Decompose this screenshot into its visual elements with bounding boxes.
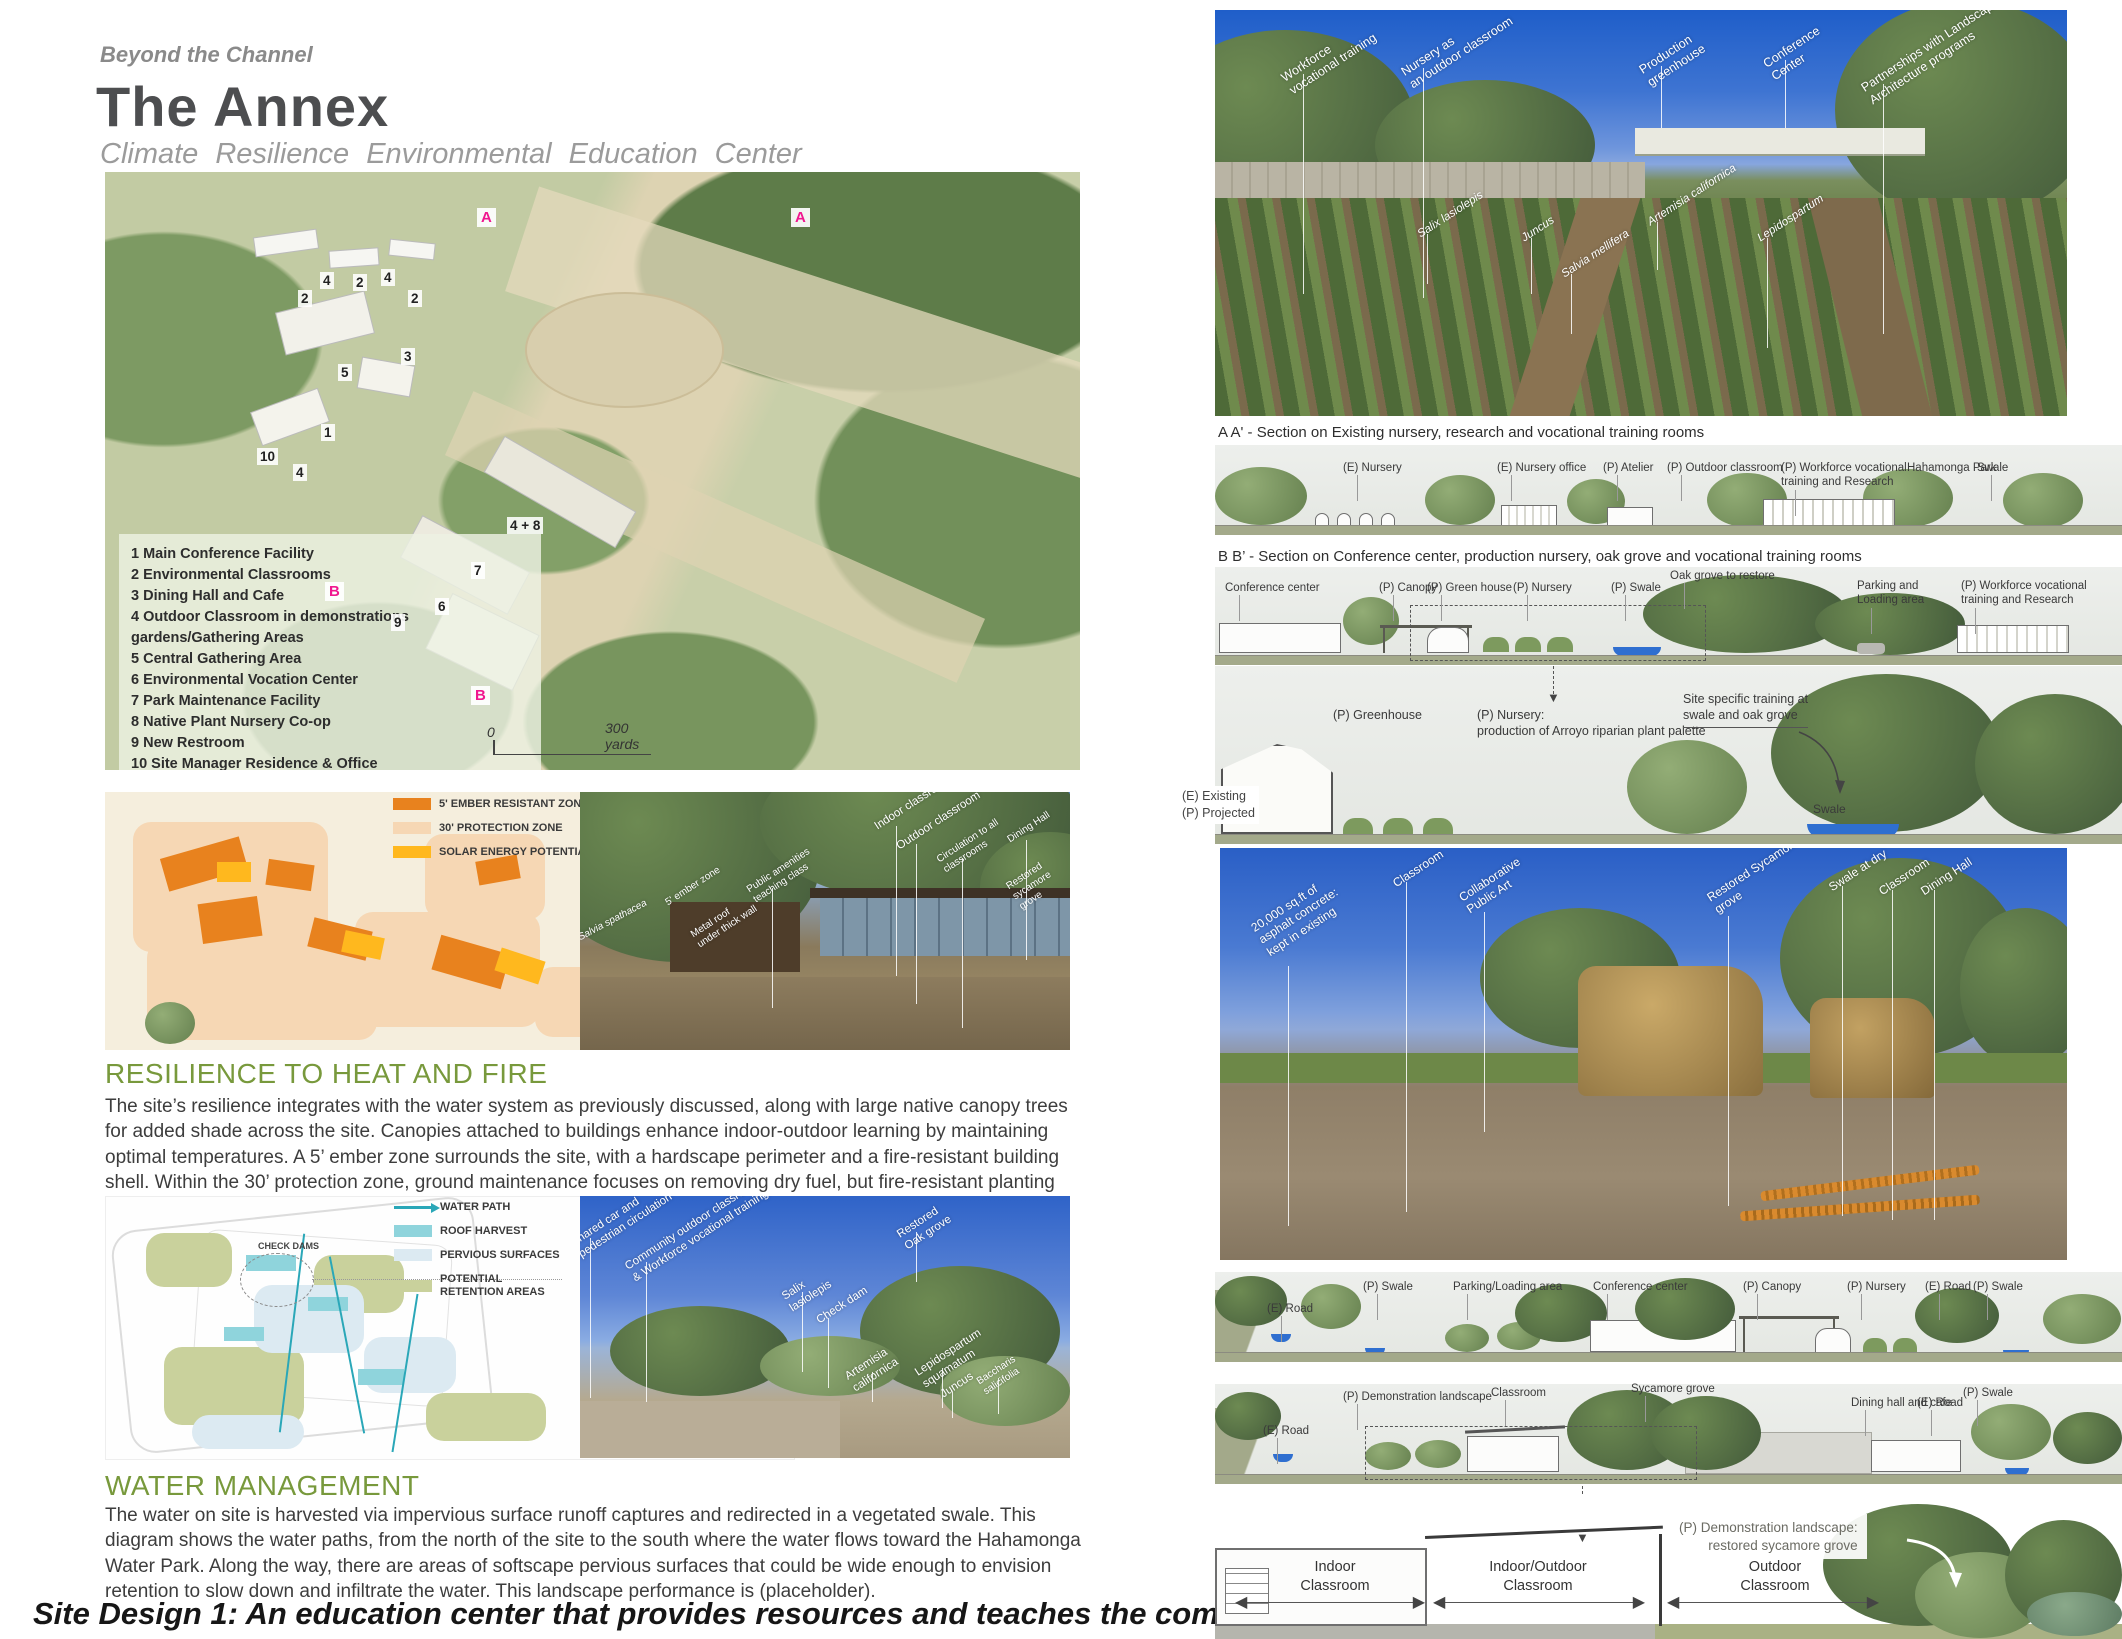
atelier-building [1607,507,1653,526]
leader-line [942,1368,943,1408]
curved-arrow-icon [1795,728,1855,798]
parked-car [1857,643,1885,654]
arrow-right-icon: ▶ [1633,1592,1645,1612]
section-b-caption: B B’ - Section on Conference center, pro… [1218,548,1862,565]
plan-marker: 2 [408,290,422,307]
water-legend-label: ROOF HARVEST [440,1225,527,1238]
photo-annotation: Collaborative Public Art [1456,854,1530,916]
section-label: (E) Road [1925,1280,1971,1294]
down-arrow-icon: ▼ [1547,690,1560,705]
plan-marker: 4 [381,269,395,286]
tree-blob [1425,475,1495,525]
leader-line [1571,274,1572,334]
fire-legend-row: 30' PROTECTION ZONE [393,822,563,835]
section-label: Conference center [1593,1280,1688,1294]
leader-line [590,1238,591,1398]
section-label: Swale [1977,461,2008,475]
section-label: (E) Road [1263,1424,1309,1438]
leader-line [1892,890,1893,1220]
plan-marker: 2 [353,274,367,291]
scale-tick [493,740,495,755]
photo-annotation: Restored Oak grove [895,1202,955,1254]
photo-annotation: 20,000 sq.ft of asphalt concrete: kept i… [1248,873,1348,959]
leader-line [1484,912,1485,1132]
leader-line [1303,74,1304,294]
water-legend-label: POTENTIAL RETENTION AREAS [440,1273,545,1298]
leader-line [802,1292,803,1372]
solar-swatch-icon [393,846,431,858]
nursery-photo: Workforce vocational training Nursery as… [1215,10,2067,416]
leader-line [1427,234,1428,284]
detail-label-swale: Swale [1813,802,1846,817]
arrow-right-icon: ▶ [1413,1592,1425,1612]
leader-line [828,1318,829,1388]
detail-section-drawing: ▼ (P) Greenhouse (P) Nursery: production… [1215,666,2122,844]
plan-marker: 4 + 8 [507,517,543,534]
leader-line [1657,222,1658,270]
curved-arrow-icon [1903,1536,1967,1592]
tree-blob [2043,1294,2121,1344]
art-grove-photo: 20,000 sq.ft of asphalt concrete: kept i… [1220,848,2067,1260]
section-a-drawing: (E) Nursery (E) Nursery office (P) Ateli… [1215,445,2122,535]
photo-annotation: Conference Center [1761,24,1832,84]
stone-wall [1215,162,1645,198]
leader-line [872,1372,873,1402]
solar-roof [217,862,251,882]
section-b-drawing: Conference center (P) Canopy (P) Green h… [1215,567,2122,665]
bike-path-marker: A [791,208,810,227]
leader-line [646,1262,647,1402]
nursery-bed [1423,818,1453,834]
gravel-path [580,1401,840,1458]
workforce-building [1957,625,2069,653]
leader-line [1883,84,1884,334]
nursery-bed [1383,818,1413,834]
protection-zone-swatch-icon [393,822,431,834]
section-label: Oak grove to restore [1670,569,1775,583]
ground [1215,1352,2122,1362]
section-label: (P) Green house [1427,581,1512,595]
scale-distance: 300 yards [605,720,639,752]
ember-zone-building [198,896,263,944]
stick-structure [1578,966,1763,1096]
leader-line [772,888,773,1008]
ground [1215,834,2122,844]
legend-item: 7 Park Maintenance Facility [131,691,529,712]
workforce-building [1763,499,1895,526]
fire-render-photo: Indoor classroom Outdoor classroom Circu… [580,792,1070,1050]
tree-blob [610,1306,790,1396]
water-render-photo: Shared car and pedestrian circulation Co… [580,1196,1070,1458]
leader-line [998,1378,999,1414]
conference-building [1635,128,1925,154]
fire-legend-row: SOLAR ENERGY POTENTIAL [393,846,592,859]
arrow-left-icon: ◀ [1235,1592,1247,1612]
plan-marker: 4 [320,272,334,289]
water-path-arrow-icon [394,1206,432,1209]
section-label: (P) Swale [1973,1280,2023,1294]
arrow-left-icon: ◀ [1667,1592,1679,1612]
water-legend-row: PERVIOUS SURFACES [394,1249,560,1262]
section-label: Parking/Loading area [1453,1280,1562,1294]
plan-marker: 9 [391,614,405,631]
photo-annotation: Restored Sycamore grove [1704,848,1809,917]
scale-zero: 0 [487,724,495,740]
plan-marker: 2 [298,290,312,307]
ember-zone-swatch-icon [393,798,431,810]
roof-harvest-shape [308,1297,348,1311]
water-body: The water on site is harvested via imper… [105,1503,1083,1604]
section-label: Conference center [1225,581,1320,595]
plan-marker: 5 [338,364,352,381]
building-footprint [330,248,379,267]
check-dams-circle [240,1253,314,1307]
detail-label-nursery: (P) Nursery: production of Arroyo ripari… [1477,708,1706,739]
fire-legend-row: 5' EMBER RESISTANT ZONE [393,798,589,811]
leader-line [1661,66,1662,128]
canopy-post [1383,625,1385,653]
tree-blob [145,1002,195,1044]
section-label: Parking and Loading area [1857,579,1924,608]
leader-line [1288,966,1289,1226]
page-title: The Annex [96,74,389,139]
nursery-bed [1343,818,1373,834]
zone-dimension: ◀▶ [1433,1592,1645,1612]
ground [580,977,1070,1050]
retention-area [426,1393,546,1441]
trail-marker: B [471,686,490,705]
leader-line [962,858,963,1028]
presentation-board: Beyond the Channel The Annex Climate Res… [0,0,2122,1639]
plan-marker: 7 [471,562,485,579]
water-legend-row: WATER PATH [394,1201,510,1214]
nursery-bed [1893,1338,1917,1352]
water-legend-row: ROOF HARVEST [394,1225,527,1238]
section-label: (E) Nursery office [1497,461,1586,475]
fire-legend-label: 5' EMBER RESISTANT ZONE [439,798,589,811]
page-subtitle: Climate Resilience Environmental Educati… [100,138,802,171]
building-footprint [389,240,434,260]
fire-legend-label: SOLAR ENERGY POTENTIAL [439,846,592,859]
roof-harvest-shape [358,1369,404,1385]
section-label: (P) Demonstration landscape [1343,1390,1492,1404]
section-label: (P) Nursery [1847,1280,1906,1294]
water-legend-label: PERVIOUS SURFACES [440,1249,560,1262]
section-label: (E) Road [1917,1396,1963,1410]
tree-blob [1627,740,1747,834]
section-c-drawing: (E) Road (P) Swale Parking/Loading area … [1215,1272,2122,1362]
pervious-surface [192,1415,304,1449]
riding-ring [525,292,724,408]
bike-path-marker: A [477,208,496,227]
fire-legend-label: 30' PROTECTION ZONE [439,822,563,835]
tree-blob [2053,1412,2122,1464]
retention-area [146,1233,232,1287]
building-footprint [251,389,328,445]
leader-line [952,1392,953,1418]
zone-dimension: ◀▶ [1667,1592,1879,1612]
site-plan-map: 1 Main Conference Facility 2 Environment… [105,172,1080,770]
legend-item: 9 New Restroom [131,733,529,754]
project-eyebrow: Beyond the Channel [100,42,313,68]
canopy-post [1743,1316,1745,1352]
section-label: (P) Nursery [1513,581,1572,595]
existing-projected-key: (E) Existing (P) Projected [1178,786,1259,824]
roof-harvest-swatch-icon [394,1225,432,1237]
section-label: (P) Workforce vocational training and Re… [1961,579,2087,608]
leader-line [1842,886,1843,1216]
leader-line [1026,840,1027,960]
tree-blob [1215,1276,1287,1326]
building-footprint [254,230,318,256]
plan-marker: 1 [321,424,335,441]
legend-item: 8 Native Plant Nursery Co-op [131,712,529,733]
zone-label: Indoor Classroom [1255,1558,1415,1596]
pervious-swatch-icon [394,1249,432,1261]
zone-dimension: ◀▶ [1235,1592,1425,1612]
nursery-office-building [1501,505,1557,526]
stick-structure [1388,1018,1473,1098]
demonstration-callout: (P) Demonstration landscape: restored sy… [1670,1514,1867,1559]
leader-line [916,1232,917,1282]
leader-line [1406,882,1407,1212]
leader-line [1728,916,1729,1206]
section-label: Sycamore grove [1631,1382,1715,1396]
water-legend-label: WATER PATH [440,1201,510,1214]
plan-marker: 3 [401,348,415,365]
canopy-roof [1739,1316,1839,1319]
leader-line [896,826,897,976]
section-label: (P) Atelier [1603,461,1654,475]
detail-label-greenhouse: (P) Greenhouse [1333,708,1422,724]
dining-building [1871,1440,1961,1472]
stick-structure [1810,998,1935,1098]
stick-bundle [1760,1165,1980,1202]
leader-line [1934,890,1935,1220]
legend-item: 4 Outdoor Classroom in demonstrations ga… [131,607,529,649]
ground [1215,525,2122,535]
water-legend-row: POTENTIAL RETENTION AREAS [394,1273,545,1298]
dashed-focus-box [1365,1426,1697,1480]
zone-label: Indoor/Outdoor Classroom [1443,1558,1633,1596]
section-label: (P) Swale [1963,1386,2013,1400]
slanted-roof [1425,1526,1663,1539]
building-footprint [276,292,373,355]
section-label: (E) Road [1267,1302,1313,1316]
trail-marker: B [325,582,344,601]
leader-line [1423,68,1424,298]
section-a-caption: A A' - Section on Existing nursery, rese… [1218,424,1704,441]
zone-label: Outdoor Classroom [1685,1558,1865,1596]
resilience-heading: RESILIENCE TO HEAT AND FIRE [105,1058,547,1090]
arrow-left-icon: ◀ [1433,1592,1445,1612]
legend-item: 10 Site Manager Residence & Office [131,754,529,770]
section-label: (P) Swale [1363,1280,1413,1294]
photo-annotation: Classroom [1390,848,1446,890]
plan-marker: 6 [435,598,449,615]
section-label: (P) Swale [1611,581,1661,595]
tree-blob [1215,467,1307,525]
shrub-blob [1445,1324,1489,1352]
section-label: (P) Workforce vocational training and Re… [1781,461,1907,490]
dashed-focus-box [1410,605,1706,661]
legend-item: 1 Main Conference Facility [131,544,529,565]
scale-bar [493,754,651,755]
shrub-blob [2027,1592,2122,1636]
tree-blob [1971,1404,2051,1460]
section-label: (P) Canopy [1743,1280,1801,1294]
section-d-drawing: (E) Road (P) Demonstration landscape Cla… [1215,1384,2122,1484]
legend-item: 6 Environmental Vocation Center [131,670,529,691]
leader-line [1767,238,1768,348]
leader-line [916,844,917,1004]
conference-building [1219,623,1341,653]
planting-rows [1215,198,2067,416]
leader-line [1531,238,1532,294]
legend-item: 5 Central Gathering Area [131,649,529,670]
photo-annotation: Production greenhouse [1637,29,1709,90]
plan-marker: 10 [257,448,278,465]
detail-label-training: Site specific training at swale and oak … [1683,692,1808,728]
leader-line [1785,60,1786,128]
greenhouse-building [1815,1328,1851,1353]
retention-swatch-icon [394,1280,432,1292]
nursery-bed [1863,1338,1887,1352]
tree-blob [2003,473,2083,528]
check-dams-label: CHECK DAMS [258,1241,319,1251]
section-label: (E) Nursery [1343,461,1402,475]
tree-blob [1343,597,1399,645]
plan-marker: 4 [293,464,307,481]
section-label: Classroom [1491,1386,1546,1400]
oak-tree [1975,694,2122,834]
classroom-section-drawing: ▼ Indoor Classroom ◀▶ Indoor/Outdoor Cla… [1215,1496,2122,1639]
hardscape-floor [1215,1624,1655,1639]
roof-post [1659,1534,1662,1626]
section-label: (P) Outdoor classroom [1667,461,1783,475]
arrow-right-icon: ▶ [1867,1592,1879,1612]
water-heading: WATER MANAGEMENT [105,1470,419,1502]
roof-harvest-shape [224,1327,264,1341]
